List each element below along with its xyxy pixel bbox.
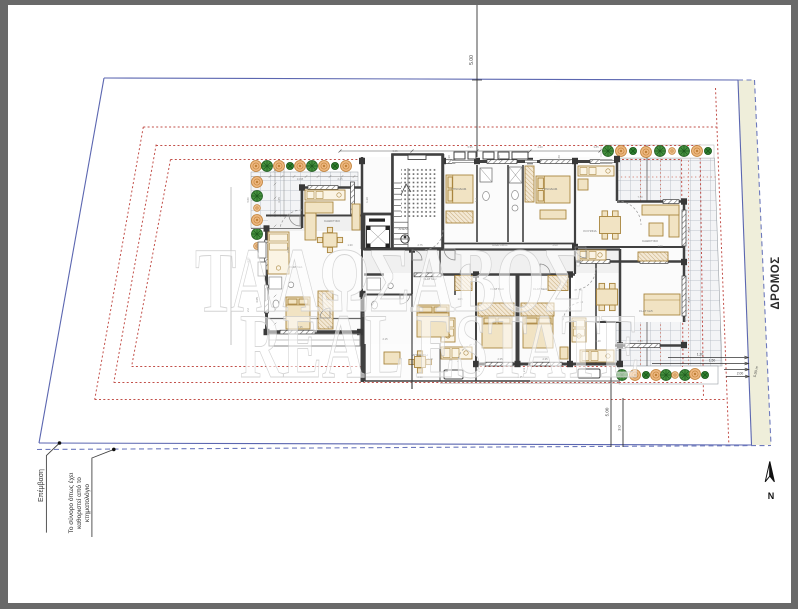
svg-text:1.1: 1.1 <box>474 198 478 202</box>
svg-text:14.95: 14.95 <box>297 177 304 181</box>
svg-text:3.90: 3.90 <box>447 155 451 161</box>
svg-text:7.10: 7.10 <box>637 195 643 199</box>
svg-text:2.10: 2.10 <box>497 155 501 161</box>
svg-text:5.95: 5.95 <box>467 145 473 149</box>
svg-text:Επέμβαση: Επέμβαση <box>37 469 45 502</box>
svg-text:1.50: 1.50 <box>709 359 716 363</box>
svg-text:3.15: 3.15 <box>687 297 691 303</box>
svg-text:καθοριστεί από το: καθοριστεί από το <box>75 477 83 529</box>
svg-text:1.00: 1.00 <box>657 244 663 248</box>
svg-text:κτηματολόγιο: κτηματολόγιο <box>83 484 91 522</box>
svg-text:ΥΠΝΟΔΩΜ.: ΥΠΝΟΔΩΜ. <box>542 187 558 191</box>
svg-text:3.0: 3.0 <box>617 424 622 430</box>
svg-text:5.00: 5.00 <box>605 407 610 416</box>
svg-text:4.20: 4.20 <box>537 145 543 149</box>
svg-text:3.60: 3.60 <box>557 155 561 161</box>
svg-text:5.00: 5.00 <box>469 55 475 65</box>
svg-text:3.85: 3.85 <box>593 145 599 149</box>
svg-text:2.45: 2.45 <box>337 177 343 181</box>
svg-text:ΚΑΘΙΣΤΙΚΟ: ΚΑΘΙΣΤΙΚΟ <box>642 239 659 243</box>
svg-text:KOYZINA: KOYZINA <box>583 229 596 233</box>
svg-text:ΚΑΘΙΣΤΙΚΟ: ΚΑΘΙΣΤΙΚΟ <box>324 219 341 223</box>
svg-text:3.45: 3.45 <box>277 197 281 203</box>
svg-text:N: N <box>768 491 775 501</box>
svg-text:1.20: 1.20 <box>697 353 704 357</box>
svg-text:5.60: 5.60 <box>246 197 250 203</box>
svg-text:3.20: 3.20 <box>687 227 691 233</box>
svg-text:1.20: 1.20 <box>365 197 369 203</box>
svg-text:Το σύνορο όπως έχει: Το σύνορο όπως έχει <box>67 472 75 533</box>
svg-text:ΔΡΟΜΟΣ: ΔΡΟΜΟΣ <box>770 256 782 309</box>
svg-text:3.05: 3.05 <box>392 149 398 153</box>
svg-text:FLAT No5: FLAT No5 <box>639 309 653 313</box>
svg-text:ΥΠΝΟΔΩΜ.: ΥΠΝΟΔΩΜ. <box>451 187 467 191</box>
svg-text:2.00: 2.00 <box>737 372 744 376</box>
svg-text:REAL ESTATE: REAL ESTATE <box>240 295 640 397</box>
svg-text:2.9: 2.9 <box>683 318 687 322</box>
